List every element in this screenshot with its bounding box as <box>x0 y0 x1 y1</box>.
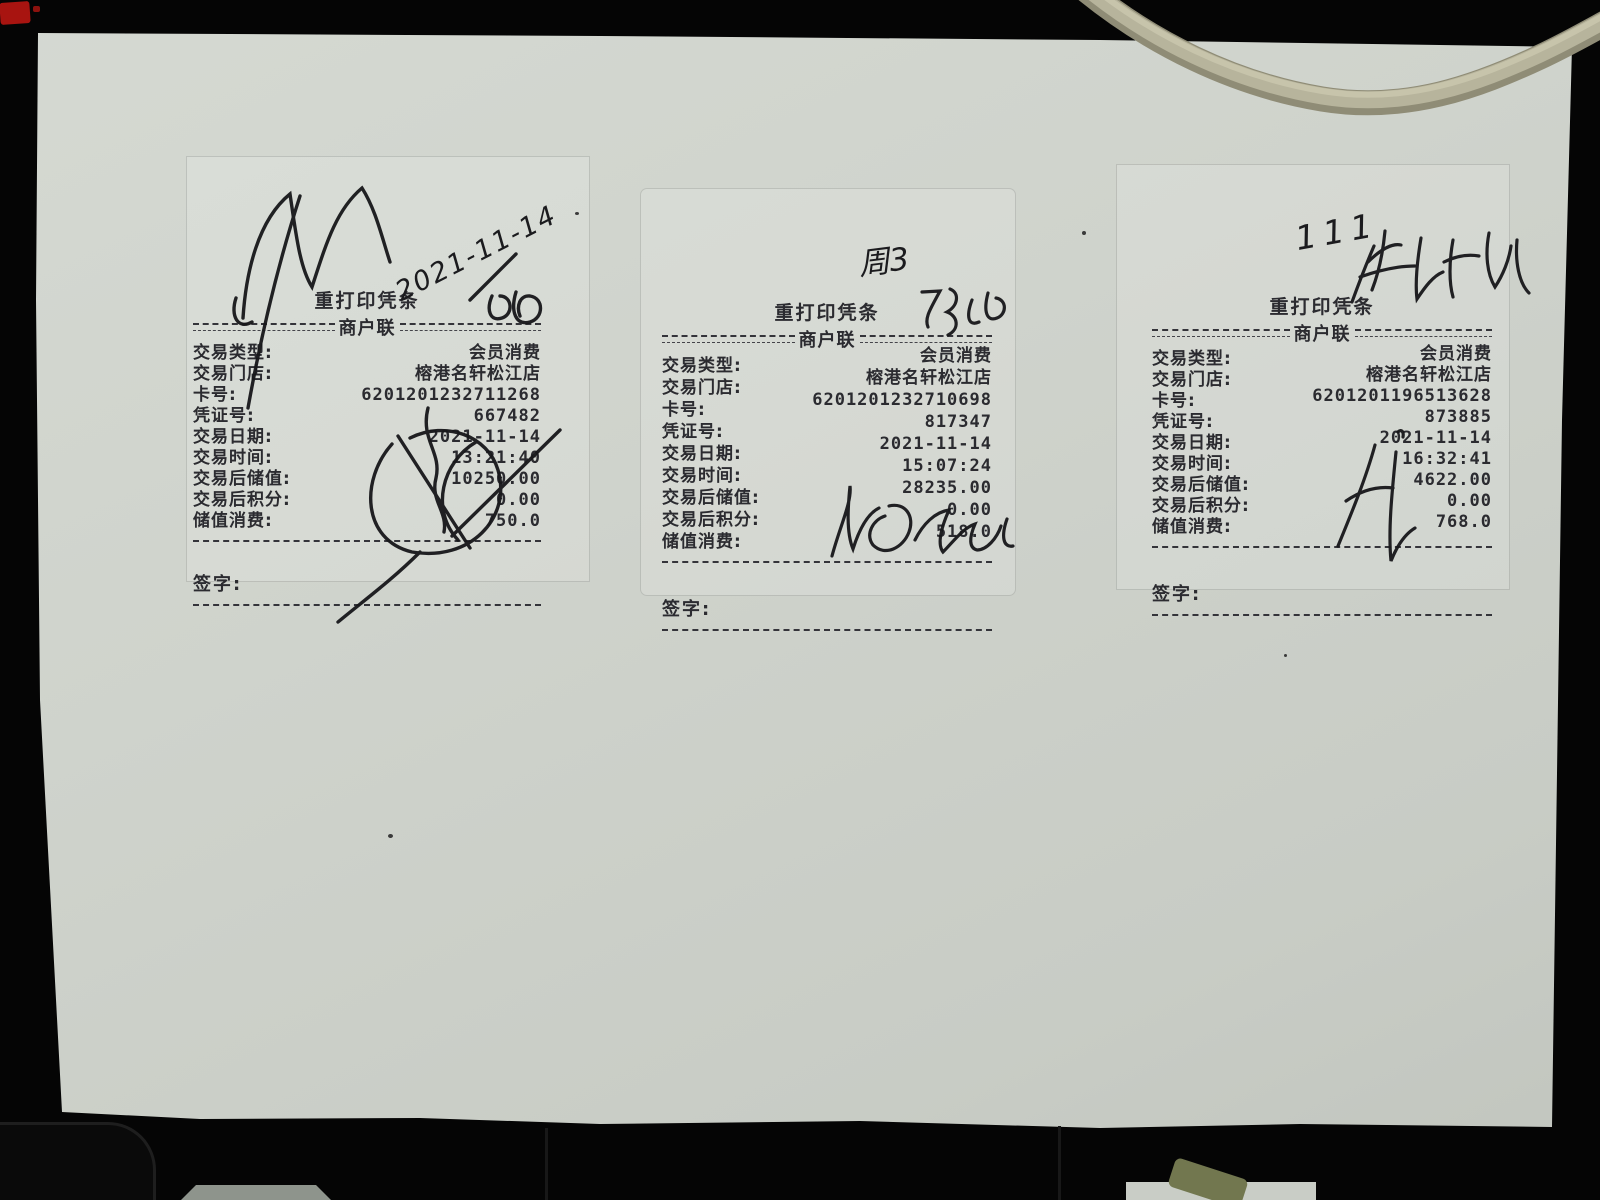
field-label: 交易后积分: <box>1152 496 1250 517</box>
table-row: 交易后积分:0.00 <box>193 490 541 511</box>
field-value: 2021-11-14 <box>1380 428 1492 449</box>
field-value: 榕港名轩松江店 <box>1366 365 1492 386</box>
field-label: 交易类型: <box>193 343 273 364</box>
table-row: 交易后储值:4622.00 <box>1152 475 1492 496</box>
red-paint-speck <box>33 6 40 12</box>
dust-speck <box>575 212 579 215</box>
copy-label: 商户联 <box>335 314 400 340</box>
dust-speck <box>1284 654 1287 657</box>
field-value: 0.00 <box>496 490 541 511</box>
dashed-line <box>662 335 795 343</box>
signature-line: 签字: <box>1152 580 1492 616</box>
field-label: 交易后积分: <box>193 490 291 511</box>
table-row: 储值消费:768.0 <box>1152 517 1492 538</box>
field-label: 交易后储值: <box>1152 475 1250 496</box>
receipt-fields: 交易类型:会员消费 交易门店:榕港名轩松江店 卡号:62012011965136… <box>1152 349 1492 548</box>
field-value: 榕港名轩松江店 <box>415 364 541 385</box>
field-label: 交易时间: <box>1152 454 1232 475</box>
field-label: 凭证号: <box>662 421 724 443</box>
field-value: 15:07:24 <box>902 455 992 477</box>
field-value: 28235.00 <box>902 477 992 499</box>
receipt-title: 重打印凭条 <box>1152 292 1492 319</box>
field-label: 交易后积分: <box>662 509 760 531</box>
field-value: 817347 <box>925 411 992 433</box>
copy-divider: 商户联 <box>1152 320 1492 346</box>
dashed-line <box>193 323 335 331</box>
field-label: 储值消费: <box>193 511 273 532</box>
field-label: 交易日期: <box>193 427 273 448</box>
signature-line: 签字: <box>662 595 992 631</box>
table-row: 交易门店:榕港名轩松江店 <box>193 364 541 385</box>
table-row: 交易类型:会员消费 <box>193 343 541 364</box>
field-label: 卡号: <box>1152 391 1196 412</box>
field-label: 交易门店: <box>193 364 273 385</box>
field-value: 会员消费 <box>1420 344 1492 365</box>
table-row: 卡号:6201201232711268 <box>193 385 541 406</box>
field-value: 会员消费 <box>469 343 541 364</box>
field-value: 6201201196513628 <box>1312 386 1492 407</box>
receipt-1: 重打印凭条 商户联 交易类型:会员消费 交易门店:榕港名轩松江店 卡号:6201… <box>193 286 541 606</box>
field-label: 交易后储值: <box>662 487 760 509</box>
field-value: 6201201232711268 <box>361 385 541 406</box>
desk-seam <box>545 1128 548 1200</box>
field-value: 4622.00 <box>1413 470 1492 491</box>
field-value: 16:32:41 <box>1402 449 1492 470</box>
dashed-line <box>400 323 542 331</box>
dust-speck <box>388 834 393 838</box>
receipt-fields: 交易类型:会员消费 交易门店:榕港名轩松江店 卡号:62012012327106… <box>662 355 992 563</box>
receipt-title: 重打印凭条 <box>193 286 541 313</box>
field-label: 交易时间: <box>193 448 273 469</box>
field-label: 交易门店: <box>1152 370 1232 391</box>
field-value: 667482 <box>474 406 541 427</box>
dashed-line <box>1152 329 1290 337</box>
signature-line: 签字: <box>193 570 541 606</box>
field-label: 交易时间: <box>662 465 742 487</box>
dashed-line <box>1355 329 1493 337</box>
field-value: 10250.00 <box>451 469 541 490</box>
field-label: 交易日期: <box>662 443 742 465</box>
table-row: 储值消费:750.0 <box>193 511 541 532</box>
field-label: 交易类型: <box>662 355 742 377</box>
field-value: 0.00 <box>947 499 992 521</box>
field-label: 交易类型: <box>1152 349 1232 370</box>
field-label: 交易后储值: <box>193 469 291 490</box>
field-value: 2021-11-14 <box>429 427 541 448</box>
table-row: 凭证号:667482 <box>193 406 541 427</box>
desk-seam <box>1058 1126 1061 1200</box>
field-value: 0.00 <box>1447 491 1492 512</box>
copy-label: 商户联 <box>1290 320 1355 346</box>
field-value: 6201201232710698 <box>812 389 992 411</box>
field-label: 交易门店: <box>662 377 742 399</box>
dust-speck <box>1082 231 1086 235</box>
red-paint-mark <box>0 1 31 25</box>
receipt-fields: 交易类型:会员消费 交易门店:榕港名轩松江店 卡号:62012012327112… <box>193 343 541 542</box>
field-value: 榕港名轩松江店 <box>866 367 992 389</box>
copy-label: 商户联 <box>795 326 860 352</box>
table-row: 交易日期:2021-11-14 <box>193 427 541 448</box>
receipt-title: 重打印凭条 <box>662 298 992 325</box>
field-value: 13:21:40 <box>451 448 541 469</box>
field-label: 储值消费: <box>1152 517 1232 538</box>
field-label: 卡号: <box>193 385 237 406</box>
field-value: 750.0 <box>485 511 541 532</box>
table-row: 储值消费:518.0 <box>662 531 992 553</box>
field-label: 交易日期: <box>1152 433 1232 454</box>
table-row: 交易后储值:28235.00 <box>662 487 992 509</box>
receipt-2: 重打印凭条 商户联 交易类型:会员消费 交易门店:榕港名轩松江店 卡号:6201… <box>662 298 992 631</box>
photo-of-receipts: 重打印凭条 商户联 交易类型:会员消费 交易门店:榕港名轩松江店 卡号:6201… <box>0 0 1600 1200</box>
desk-corner-edge <box>0 1122 156 1200</box>
table-row: 交易时间:13:21:40 <box>193 448 541 469</box>
handwritten-note: 周3 <box>855 233 911 284</box>
field-label: 凭证号: <box>193 406 255 427</box>
field-label: 卡号: <box>662 399 706 421</box>
field-label: 凭证号: <box>1152 412 1214 433</box>
copy-divider: 商户联 <box>193 314 541 340</box>
field-value: 518.0 <box>936 521 992 543</box>
field-label: 储值消费: <box>662 531 742 553</box>
field-value: 2021-11-14 <box>880 433 992 455</box>
dashed-line <box>860 335 993 343</box>
field-value: 会员消费 <box>920 345 992 367</box>
receipt-3: 重打印凭条 商户联 交易类型:会员消费 交易门店:榕港名轩松江店 卡号:6201… <box>1152 292 1492 616</box>
table-row: 交易后储值:10250.00 <box>193 469 541 490</box>
field-value: 768.0 <box>1436 512 1492 533</box>
desk-object <box>181 1185 331 1200</box>
field-value: 873885 <box>1425 407 1492 428</box>
